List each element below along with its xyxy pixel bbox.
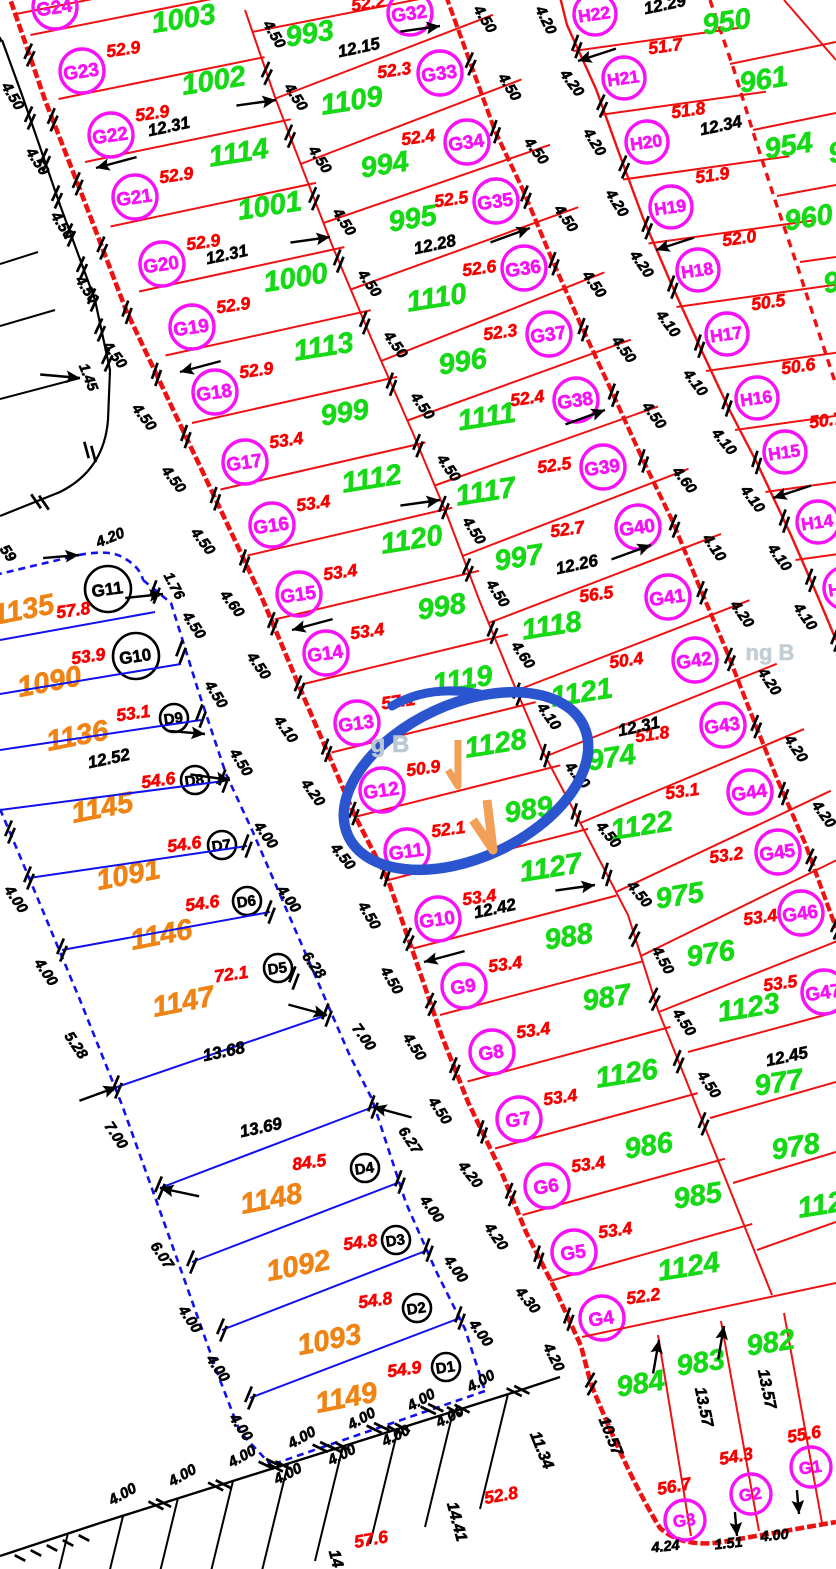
svg-text:H13: H13 xyxy=(827,576,836,600)
svg-text:G5: G5 xyxy=(559,1241,587,1265)
svg-text:G3: G3 xyxy=(672,1510,697,1532)
svg-text:D2: D2 xyxy=(406,1299,427,1319)
svg-text:50.7: 50.7 xyxy=(808,408,836,433)
svg-text:G8: G8 xyxy=(477,1041,505,1065)
svg-text:4.00: 4.00 xyxy=(759,1527,790,1546)
svg-text:D6: D6 xyxy=(236,892,257,912)
svg-text:1.51: 1.51 xyxy=(714,1535,744,1554)
svg-text:D7: D7 xyxy=(211,836,232,856)
svg-text:G7: G7 xyxy=(504,1108,532,1132)
svg-text:G2: G2 xyxy=(738,1484,763,1506)
svg-text:G47: G47 xyxy=(804,980,836,1006)
svg-text:D1: D1 xyxy=(435,1358,456,1378)
svg-text:4.24: 4.24 xyxy=(650,1538,681,1557)
svg-text:g B: g B xyxy=(371,731,410,758)
svg-text:D3: D3 xyxy=(385,1231,406,1251)
svg-text:G4: G4 xyxy=(587,1307,615,1331)
svg-text:D5: D5 xyxy=(267,959,288,979)
svg-text:D4: D4 xyxy=(354,1159,376,1179)
svg-text:G6: G6 xyxy=(532,1175,560,1199)
svg-text:G1: G1 xyxy=(798,1457,823,1479)
svg-text:ng B: ng B xyxy=(746,640,795,665)
svg-text:G9: G9 xyxy=(449,975,477,999)
